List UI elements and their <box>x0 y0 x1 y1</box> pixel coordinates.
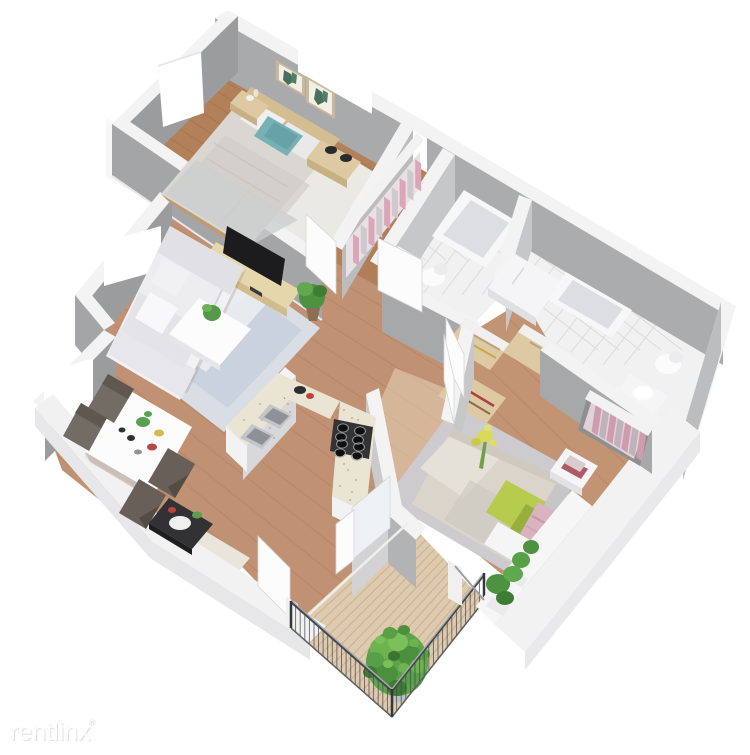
svg-text:rentlinx: rentlinx <box>10 718 91 746</box>
svg-text:®: ® <box>89 718 96 728</box>
